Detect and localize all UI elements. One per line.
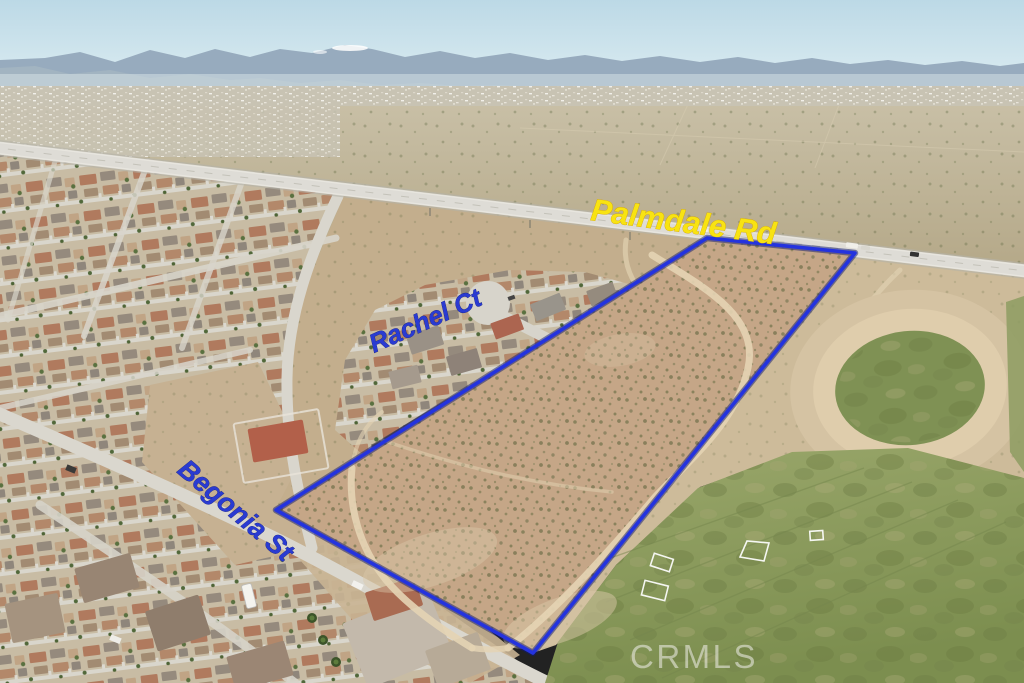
- crmls-watermark: CRMLS: [630, 638, 758, 675]
- snow-cap: [332, 45, 368, 51]
- aerial-photo: Palmdale Rd Rachel Ct Begonia St CRMLS: [0, 0, 1024, 683]
